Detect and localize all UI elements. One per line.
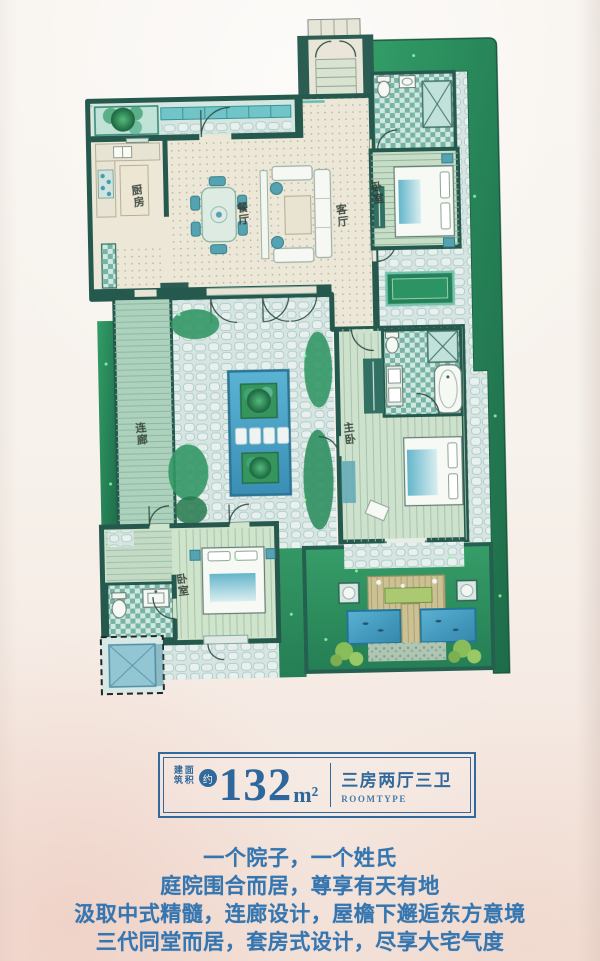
slogan-line-1: 一个院子，一个姓氏	[0, 844, 600, 872]
area-label-col-2: 面积	[183, 765, 193, 805]
pebble-bed	[368, 642, 446, 662]
bathtub	[434, 365, 462, 414]
approx-mark: 约	[199, 769, 217, 787]
area-value: 132	[219, 762, 293, 809]
bench	[385, 587, 432, 603]
area-unit: m²	[293, 782, 318, 808]
pond	[347, 610, 401, 644]
south-paving	[163, 641, 280, 680]
bathroom-master	[382, 329, 462, 417]
corridor	[114, 298, 176, 527]
north-garden-strip	[92, 100, 296, 137]
bathroom-north	[372, 72, 456, 151]
area-label: 建筑 面积	[172, 765, 193, 805]
area-badge: 建筑 面积 约 132 m² 三房两厅三卫 ROOMTYPE	[158, 752, 476, 818]
poster-photo: { "badge": { "area_label_cols": ["建筑", "…	[0, 0, 600, 961]
room-type-en: ROOMTYPE	[341, 794, 452, 804]
pond	[420, 608, 476, 642]
slogan-block: 一个院子，一个姓氏 庭院围合而居，尊享有天有地 汲取中式精髓，连廊设计，屋檐下邂…	[0, 844, 600, 956]
area-label-col-1: 建筑	[172, 765, 182, 805]
badge-divider	[330, 763, 331, 807]
sink	[399, 76, 415, 88]
slogan-line-4: 三代同堂而居，套房式设计，尽享大宅气度	[0, 928, 600, 956]
room-type-cn: 三房两厅三卫	[341, 766, 452, 791]
water-feature	[228, 370, 291, 495]
cooktop	[98, 170, 114, 198]
rug	[341, 461, 356, 503]
garden-south	[304, 541, 494, 672]
storage-cabinet	[102, 244, 117, 288]
entry-vestibule	[299, 18, 373, 96]
slogan-line-3: 汲取中式精髓，连廊设计，屋檐下邂逅东方意境	[0, 900, 600, 928]
bathroom-south	[107, 583, 176, 640]
slogan-line-2: 庭院围合而居，尊享有天有地	[0, 872, 600, 900]
annex-dashed	[101, 636, 164, 694]
master-suite	[316, 327, 467, 563]
